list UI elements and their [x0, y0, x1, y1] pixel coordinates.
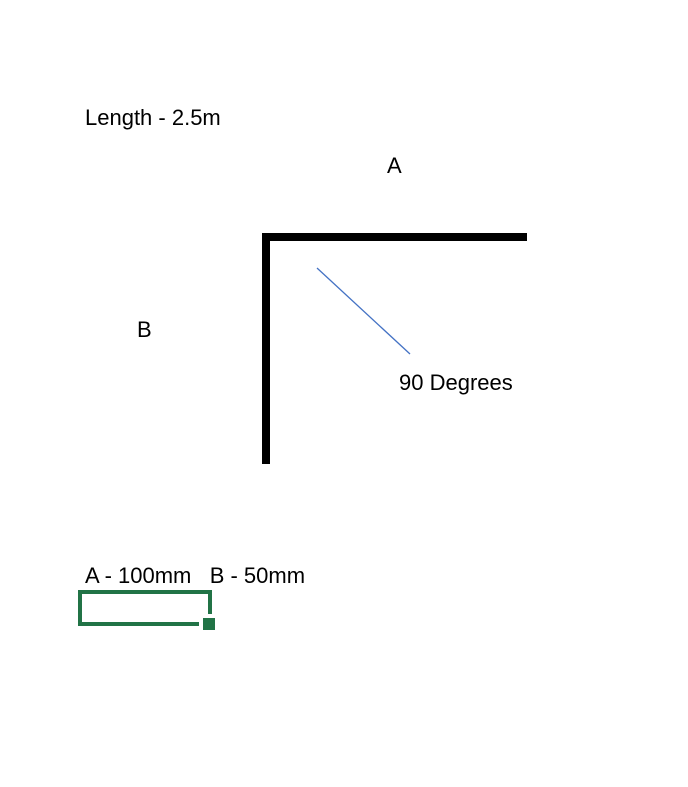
angle-label: 90 Degrees	[399, 371, 513, 395]
fill-handle[interactable]	[199, 614, 219, 634]
side-b-label: B	[137, 318, 152, 342]
length-note-text: Length - 2.5m	[85, 106, 221, 130]
side-a-label: A	[387, 154, 402, 178]
dimensions-note-text: A - 100mm B - 50mm	[85, 564, 305, 588]
side-b-line	[262, 233, 270, 464]
spreadsheet-canvas: Length - 2.5m A B 90 Degrees A - 100mm B…	[0, 0, 688, 787]
side-a-line	[262, 233, 527, 241]
selected-cell[interactable]	[78, 590, 212, 626]
